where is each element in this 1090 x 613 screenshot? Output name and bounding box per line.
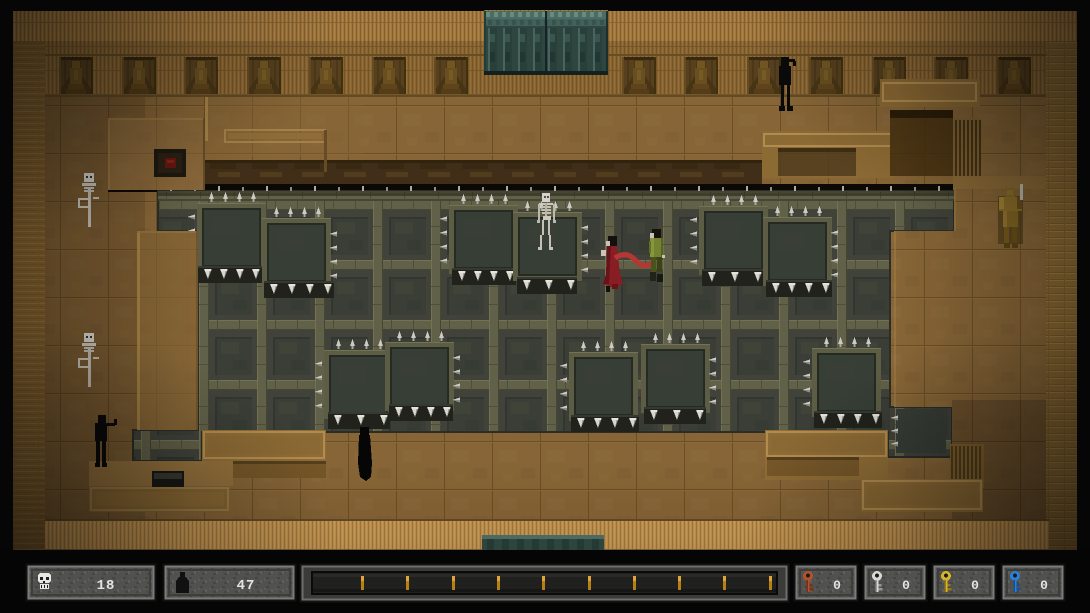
svg-text:0: 0 (833, 578, 841, 593)
svg-text:0: 0 (971, 578, 979, 593)
svg-text:0: 0 (1040, 578, 1048, 593)
svg-text:47: 47 (237, 578, 256, 594)
svg-text:0: 0 (902, 578, 910, 593)
svg-text:18: 18 (97, 578, 116, 594)
